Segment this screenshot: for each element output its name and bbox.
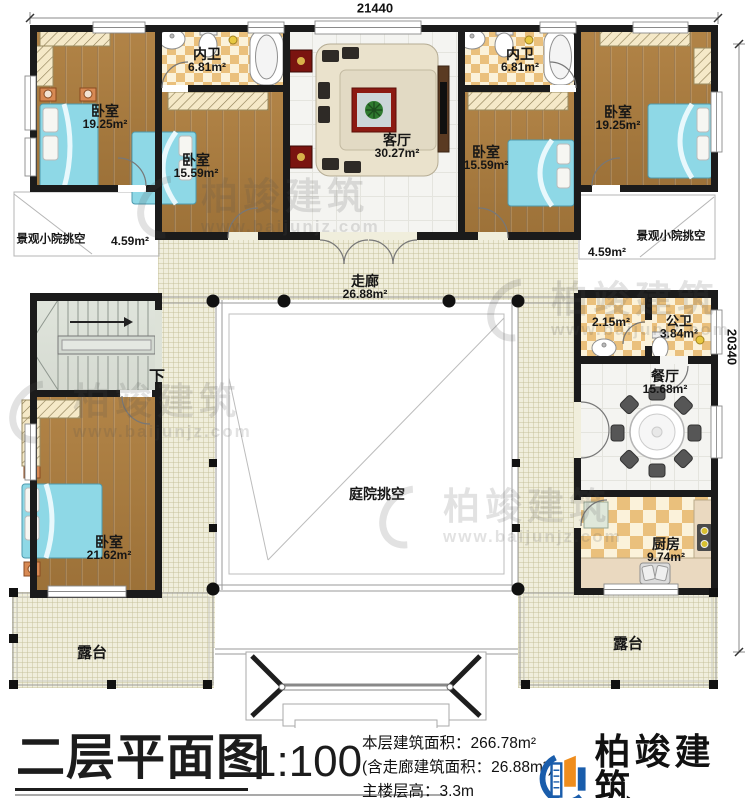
title-block: 二层平面图 1:100 本层建筑面积：266.78m² (含走廊建筑面积：26.… [0,728,750,798]
bed-icon [508,140,574,206]
room-label-bedroom-top-left: 卧室 19.25m² [83,104,128,130]
courtyard-railing [162,297,574,654]
stat-floor-area: 本层建筑面积：266.78m² [362,732,553,756]
stairs-down-label: 下 [149,370,165,386]
room-label-void-right: 景观小院挑空 [637,231,706,243]
company-logo-icon [536,751,588,798]
building-stats: 本层建筑面积：266.78m² (含走廊建筑面积：26.88m²) 主楼层高：3… [362,732,553,798]
bed-icon [648,104,712,178]
company-logo: 柏竣建筑 www.baijunjz.com [536,734,750,798]
dining-table-icon [611,387,701,477]
floor-plan-canvas: 卧室 19.25m² 内卫 6.81m² 卧室 15.59m² 客厅 30.27… [0,0,750,798]
room-label-dining: 餐厅 15.68m² [643,369,688,395]
tv-cabinet-icon [438,66,449,152]
area-label-void-left: 4.59m² [111,235,149,247]
dimension-right-label: 20340 [725,329,740,365]
area-label-void-right: 4.59m² [588,246,626,258]
entrance-roof-icon [246,652,486,732]
page-title: 二层平面图 [16,734,266,783]
company-logo-brand: 柏竣建筑 [594,734,750,798]
room-label-bedroom-inner-left: 卧室 15.59m² [174,153,219,179]
room-label-courtyard: 庭院挑空 [349,487,405,501]
room-label-bathroom-top-left: 内卫 6.81m² [188,47,226,73]
room-label-kitchen: 厨房 9.74m² [647,537,685,563]
area-label-utility: 2.15m² [592,316,630,328]
room-label-corridor: 走廊 26.88m² [343,274,388,300]
room-label-terrace-left: 露台 [77,646,107,661]
stairs-icon [36,298,155,390]
room-label-void-left: 景观小院挑空 [17,234,86,246]
room-label-living: 客厅 30.27m² [375,133,420,159]
room-label-bathroom-top-right: 内卫 6.81m² [501,47,539,73]
drawing-scale: 1:100 [252,740,362,784]
stat-corridor-area: (含走廊建筑面积：26.88m²) [362,756,553,780]
room-label-terrace-right: 露台 [613,637,643,652]
room-label-public-bath: 公卫 3.84m² [660,315,698,340]
stat-floor-height: 主楼层高：3.3m [362,780,553,798]
room-label-bedroom-inner-right: 卧室 15.59m² [464,145,509,171]
room-label-bedroom-bottom-left: 卧室 21.62m² [87,535,132,561]
title-underline [15,788,248,791]
dimension-top-label: 21440 [357,1,393,16]
room-label-bedroom-top-right: 卧室 19.25m² [596,105,641,131]
